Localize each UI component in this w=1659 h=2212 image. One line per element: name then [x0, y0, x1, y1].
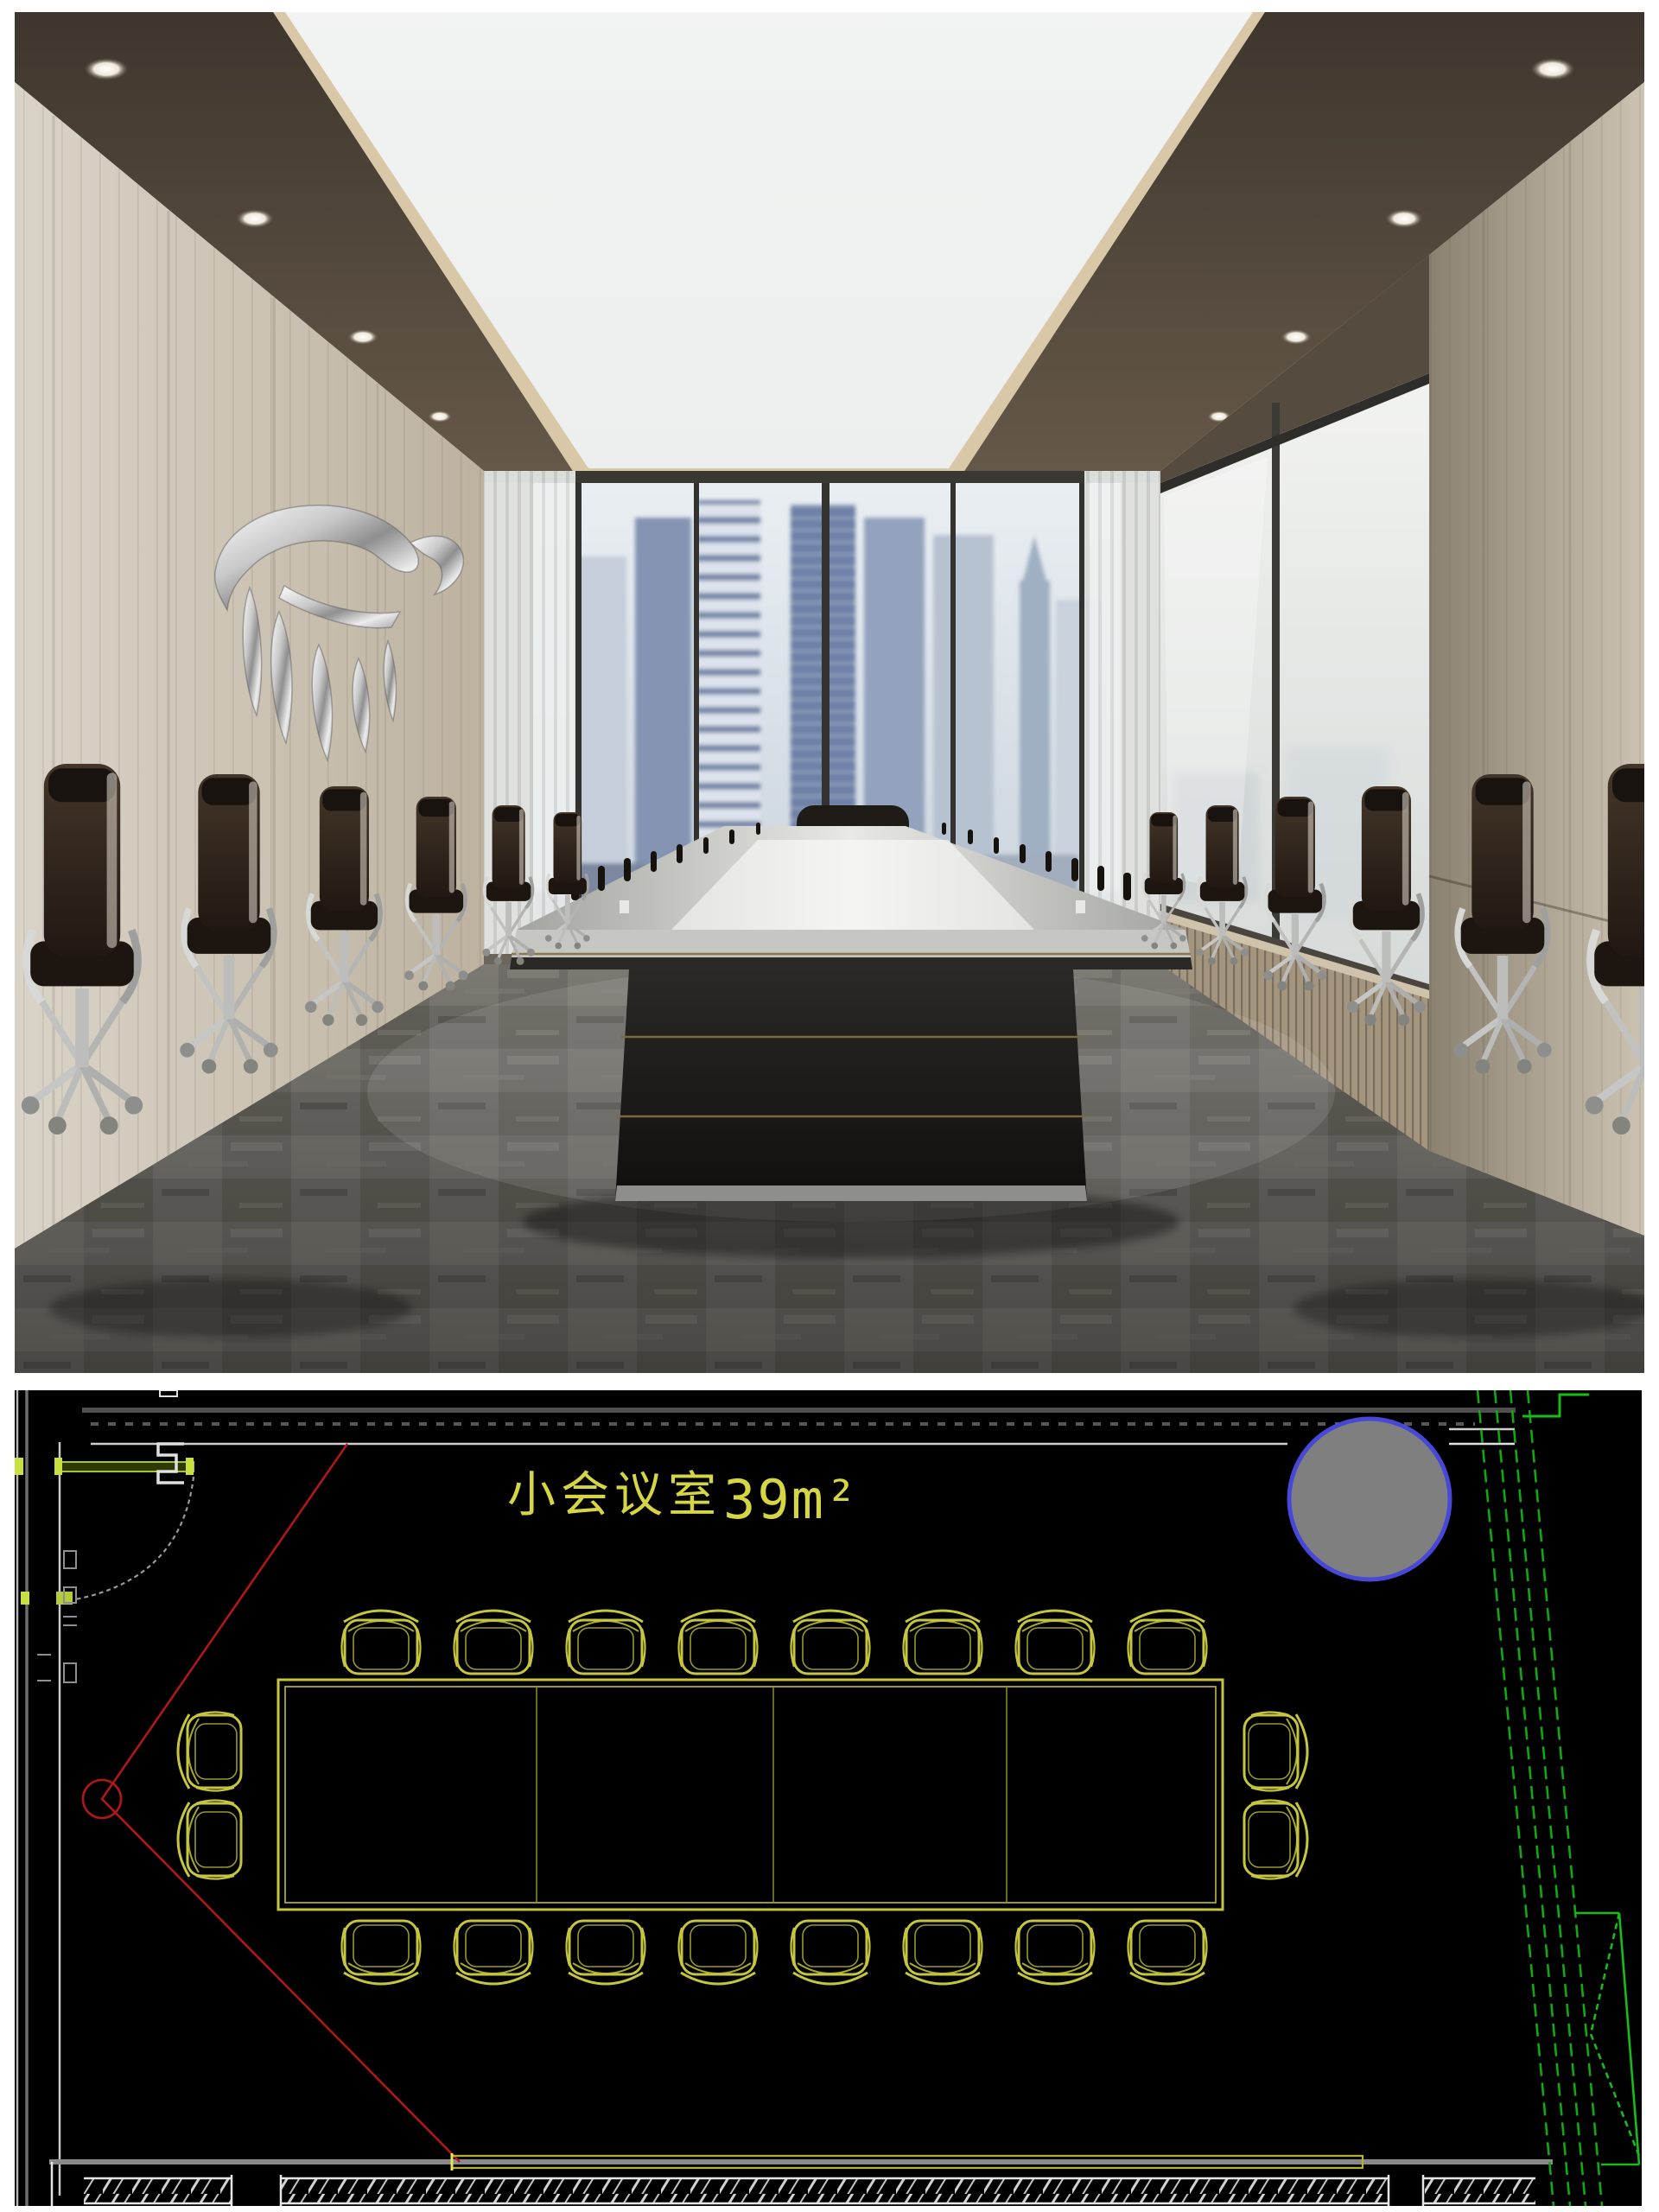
room-name-label: 小会议室 [507, 1467, 721, 1523]
render-canvas [15, 12, 1644, 1373]
meeting-room-render [15, 12, 1644, 1373]
chairs-shadow-right [1294, 1279, 1644, 1338]
design-sheet: 小会议室 39m² [0, 0, 1659, 2212]
room-area-label: 39m² [723, 1468, 859, 1531]
structural-column [1289, 1419, 1450, 1580]
table-pedestal [615, 969, 1087, 1201]
glass-cup [1076, 900, 1085, 913]
glass-cup [620, 900, 629, 913]
floor-plan-canvas: 小会议室 39m² [15, 1390, 1642, 2206]
plan-labels: 小会议室 39m² [507, 1467, 859, 1531]
floor-plan: 小会议室 39m² [15, 1390, 1642, 2206]
chairs-shadow-left [49, 1279, 412, 1338]
